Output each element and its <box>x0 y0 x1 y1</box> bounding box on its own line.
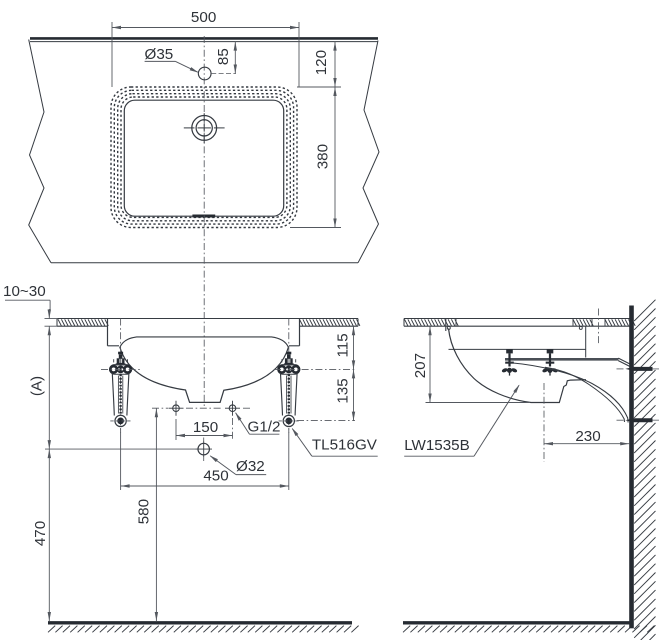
svg-text:85: 85 <box>215 48 232 65</box>
svg-text:500: 500 <box>191 9 216 26</box>
svg-text:TL516GV: TL516GV <box>312 437 378 454</box>
svg-text:(A): (A) <box>29 376 46 396</box>
svg-text:Ø32: Ø32 <box>236 458 265 475</box>
svg-text:115: 115 <box>335 333 352 357</box>
svg-text:230: 230 <box>575 428 600 445</box>
svg-text:580: 580 <box>135 499 152 524</box>
svg-text:207: 207 <box>412 353 429 378</box>
svg-text:135: 135 <box>335 378 352 403</box>
svg-text:10~30: 10~30 <box>3 283 46 300</box>
svg-text:G1/2: G1/2 <box>248 419 281 436</box>
svg-text:Ø35: Ø35 <box>145 46 174 63</box>
svg-text:380: 380 <box>315 144 332 169</box>
svg-text:120: 120 <box>313 50 330 75</box>
svg-text:450: 450 <box>203 467 228 484</box>
svg-text:150: 150 <box>193 419 218 436</box>
svg-text:LW1535B: LW1535B <box>404 437 470 454</box>
svg-text:470: 470 <box>32 521 49 546</box>
